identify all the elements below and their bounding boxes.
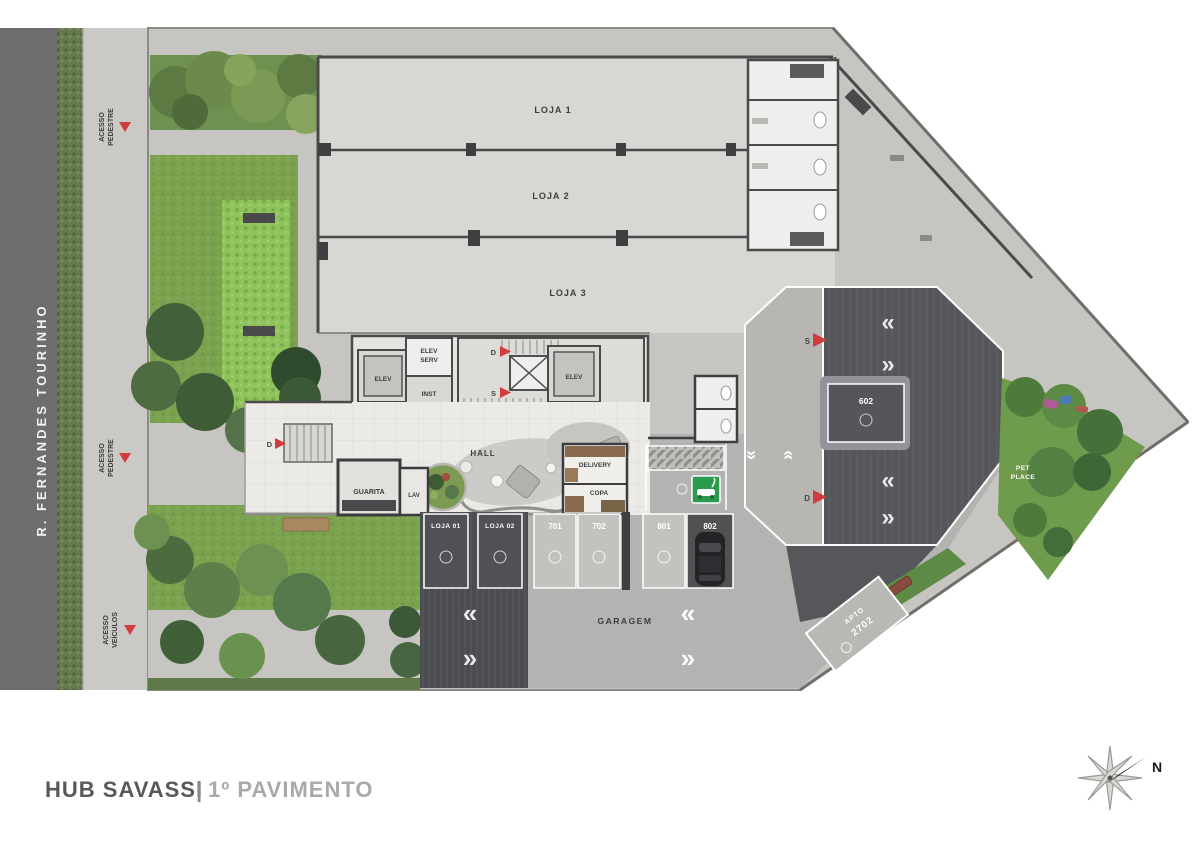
loja2-label: LOJA 2 xyxy=(532,191,569,201)
bench xyxy=(283,518,329,531)
floor-plan-svg: R. FERNANDES TOURINHO xyxy=(0,0,1200,847)
street-name-label: R. FERNANDES TOURINHO xyxy=(34,303,49,536)
helix-chevron-1: « xyxy=(881,309,894,336)
lane-chevron-left: « xyxy=(681,598,695,628)
svg-text:ACESSO: ACESSO xyxy=(99,443,106,473)
parking-spot-loja01: LOJA 01 xyxy=(424,514,468,588)
inst-label: INST xyxy=(422,391,437,398)
lane-chevron-up: « xyxy=(779,450,799,460)
parking-spot-701: 701 xyxy=(534,514,576,588)
svg-text:D: D xyxy=(491,348,497,357)
parking-spot-802: 802 xyxy=(687,514,733,588)
north-label: N xyxy=(1152,759,1162,775)
svg-text:S: S xyxy=(805,337,811,346)
parking-spot-702: 702 xyxy=(578,514,620,588)
car-icon xyxy=(695,532,725,586)
svg-text:802: 802 xyxy=(703,522,717,531)
svg-text:VEÍCULOS: VEÍCULOS xyxy=(110,612,119,648)
svg-text:602: 602 xyxy=(859,396,873,406)
svg-text:702: 702 xyxy=(592,522,606,531)
svg-text:LOJA 01: LOJA 01 xyxy=(431,523,461,530)
svg-text:ACESSO: ACESSO xyxy=(103,615,110,645)
parking-spot-602: 602 xyxy=(820,376,910,450)
lane-chevron-down: » xyxy=(742,450,762,460)
svg-text:801: 801 xyxy=(657,522,671,531)
ramp-chevron-right-1: » xyxy=(463,643,477,673)
svg-text:701: 701 xyxy=(548,522,562,531)
delivery-label: DELIVERY xyxy=(579,462,612,469)
garagem-label: GARAGEM xyxy=(598,616,653,626)
hall-area: D HALL GUARITA LAV DELIVERY COPA xyxy=(245,402,650,531)
ev-charging-sign-icon xyxy=(692,476,720,503)
parking-spot-loja02: LOJA 02 xyxy=(478,514,522,588)
compass-rose-icon: N xyxy=(1078,746,1162,810)
pet-place-label-1: PET xyxy=(1016,465,1030,472)
svg-text:LOJA 02: LOJA 02 xyxy=(485,523,515,530)
loja1-label: LOJA 1 xyxy=(534,105,571,115)
helix-chevron-4: » xyxy=(881,504,894,531)
svg-text:PEDESTRE: PEDESTRE xyxy=(108,439,115,477)
no-parking-hatch xyxy=(648,446,724,470)
helix-chevron-2: » xyxy=(881,351,894,378)
parking-spot-801: 801 xyxy=(643,514,685,588)
elev-right-label: ELEV xyxy=(566,374,584,381)
svg-text:PEDESTRE: PEDESTRE xyxy=(108,108,115,146)
plan-title: HUB SAVASSI | 1º PAVIMENTO xyxy=(45,777,374,802)
elev-serv-label-1: ELEV xyxy=(421,348,439,355)
street-hedge xyxy=(57,28,83,690)
svg-text:ACESSO: ACESSO xyxy=(99,112,106,142)
ramp-chevron-left-1: « xyxy=(463,598,477,628)
lane-chevron-right: » xyxy=(681,643,695,673)
svg-text:D: D xyxy=(804,494,810,503)
helix-chevron-3: « xyxy=(881,467,894,494)
copa-label: COPA xyxy=(590,490,609,497)
street-sidewalk xyxy=(83,28,148,690)
garden-top-left xyxy=(149,51,326,134)
svg-text:S: S xyxy=(491,389,496,398)
guarita-label: GUARITA xyxy=(353,489,384,496)
lav-room xyxy=(400,468,428,515)
lav-label: LAV xyxy=(408,493,420,499)
pet-place-label-2: PLACE xyxy=(1011,474,1036,481)
garden-bottom-left xyxy=(134,505,426,690)
floor-name: 1º PAVIMENTO xyxy=(208,777,374,802)
floor-plan-page: R. FERNANDES TOURINHO xyxy=(0,0,1200,847)
project-name: HUB SAVASSI xyxy=(45,777,203,802)
elev-serv-label-2: SERV xyxy=(420,357,438,364)
hall-label: HALL xyxy=(470,449,495,458)
loja3-label: LOJA 3 xyxy=(549,288,586,298)
svg-text:D: D xyxy=(267,440,273,449)
title-separator: | xyxy=(196,777,202,802)
delivery-copa-block: DELIVERY COPA xyxy=(563,444,627,514)
elev-left-label: ELEV xyxy=(375,376,393,383)
